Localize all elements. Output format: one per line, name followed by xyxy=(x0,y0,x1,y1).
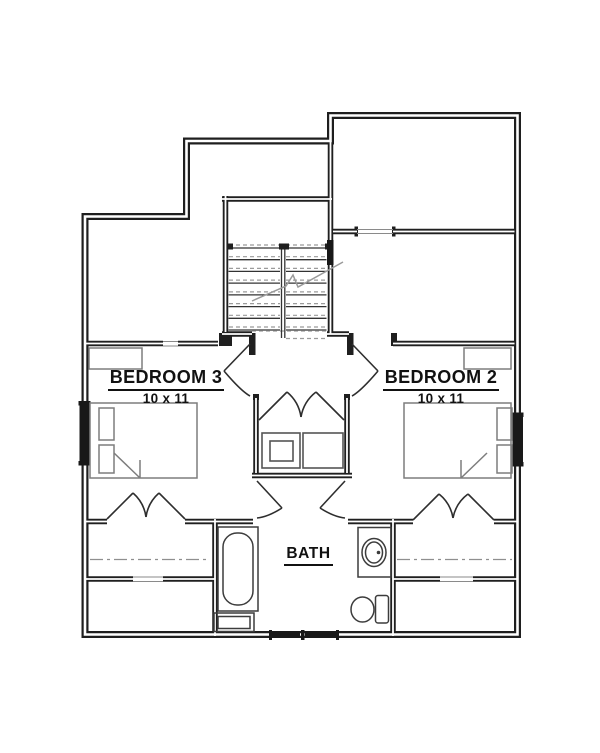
hall-closet-doors-icon xyxy=(259,392,344,420)
bath-door-right-icon xyxy=(320,481,345,518)
bed-icon xyxy=(90,403,197,478)
closet-shelves-icon xyxy=(262,433,343,468)
bedroom2-label: BEDROOM 2 xyxy=(365,367,517,391)
bedroom2-dimensions: 10 x 11 xyxy=(365,391,517,406)
bathroom-fixtures xyxy=(214,527,391,632)
bedroom3-dimensions: 10 x 11 xyxy=(90,391,242,406)
bath-door-left-icon xyxy=(257,481,282,518)
window-bath-icon xyxy=(269,630,339,640)
stair-stringer xyxy=(282,244,285,338)
toilet-icon xyxy=(351,596,389,624)
window-left-icon xyxy=(79,401,91,466)
bath-label: BATH xyxy=(246,545,371,566)
bath-label-text: BATH xyxy=(284,545,332,566)
floorplan-page: BEDROOM 3 10 x 11 BEDROOM 2 10 x 11 BATH xyxy=(0,0,600,753)
bedroom3-label-text: BEDROOM 3 xyxy=(108,367,225,391)
linen-cabinet-icon xyxy=(214,613,254,632)
window-right-icon xyxy=(512,413,524,467)
window-stairwell-icon xyxy=(327,240,334,265)
bedroom2-closet-doors-icon xyxy=(413,494,494,520)
bathtub-icon xyxy=(218,527,258,611)
windows xyxy=(79,240,524,640)
dresser-icon xyxy=(89,348,142,369)
dresser-icon xyxy=(464,348,511,369)
bedroom3-closet-doors-icon xyxy=(107,493,185,519)
staircase-up-icon xyxy=(227,244,343,339)
bedroom2-label-text: BEDROOM 2 xyxy=(383,367,500,391)
bedroom3-label: BEDROOM 3 xyxy=(90,367,242,391)
bed-icon xyxy=(404,403,512,478)
